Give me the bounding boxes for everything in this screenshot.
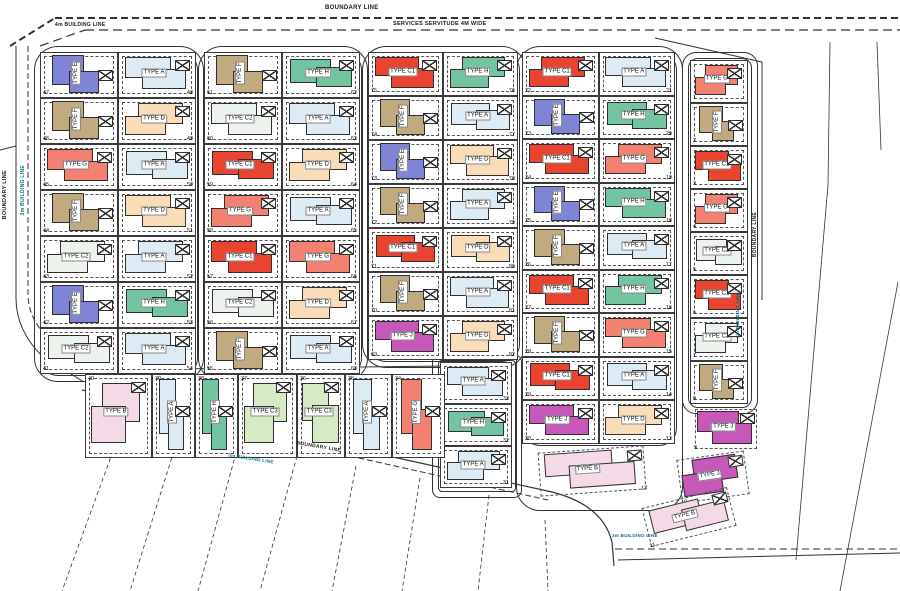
plot-27: TYPE C127 (522, 270, 599, 314)
plot-73: TYPE E73 (368, 140, 443, 184)
plot-55: TYPE F55 (204, 328, 282, 374)
house-type-label: TYPE F (552, 321, 562, 344)
house-type-label: TYPE H (305, 68, 331, 77)
plot-number: 43 (43, 274, 49, 280)
plot-54: TYPE A54 (118, 328, 196, 374)
crossed-box-icon (98, 208, 113, 219)
plot-number: 70 (371, 308, 377, 314)
plot-number: 14 (666, 392, 672, 398)
plot-number: 21 (666, 88, 672, 94)
house-type-label: TYPE F (398, 104, 408, 127)
plot-24: TYPE C124 (522, 139, 599, 183)
services-servitude-label: SERVICES SERVITUDE 4M WIDE (393, 21, 486, 27)
plot-25: TYPE E25 (522, 183, 599, 227)
house-type-label: TYPE A (141, 160, 166, 169)
crossed-box-icon (578, 278, 593, 289)
house-type-label: TYPE E (71, 61, 81, 84)
plot-number: 67 (351, 320, 357, 326)
plot-49: TYPE D49 (118, 98, 196, 144)
plot-34: TYPE G34 (392, 374, 445, 458)
plot-number: 1 (693, 95, 696, 101)
plot-68: TYPE A68 (282, 328, 360, 374)
crossed-box-icon (422, 236, 437, 247)
house-type-label: TYPE C2 (225, 298, 254, 307)
house-type-label: TYPE D (141, 206, 167, 215)
crossed-box-icon (578, 408, 593, 419)
plot-71: TYPE C171 (368, 228, 443, 272)
building-line-3m-right-label: 3m BUILDING LINE (735, 292, 741, 338)
crossed-box-icon (324, 382, 339, 393)
crossed-box-icon (97, 336, 112, 347)
crossed-box-icon (261, 244, 276, 255)
house-type-label: TYPE A (465, 199, 490, 208)
plot-13: TYPE D13 (599, 400, 676, 444)
plot-39: TYPE A39 (152, 374, 195, 458)
crossed-box-icon (491, 370, 506, 381)
plot-80: TYPE D80 (443, 228, 518, 272)
plot-81: TYPE A81 (443, 272, 518, 316)
plot-44: TYPE F44 (40, 190, 118, 236)
crossed-box-icon (372, 406, 387, 417)
plot-20: TYPE H20 (599, 96, 676, 140)
plot-number: 27 (525, 305, 531, 311)
plot-18: TYPE H18 (599, 183, 676, 227)
plot-3: TYPE C13 (690, 146, 748, 189)
house-type-label: TYPE H (621, 198, 647, 207)
crossed-box-icon (727, 154, 742, 165)
house-type-label: TYPE A (305, 206, 330, 215)
plot-number: 50 (187, 182, 193, 188)
plot-number: 80 (509, 264, 515, 270)
crossed-box-icon (175, 198, 190, 209)
crossed-box-icon (578, 365, 593, 376)
plot-8: TYPE F8 (690, 361, 748, 404)
plot-16: TYPE H16 (599, 270, 676, 314)
crossed-box-icon (339, 106, 354, 117)
plot-number: 54 (187, 366, 193, 372)
plot-number: 33 (503, 396, 509, 402)
crossed-box-icon (97, 152, 112, 163)
house-type-label: TYPE F (712, 369, 722, 392)
crossed-box-icon (497, 192, 512, 203)
crossed-box-icon (497, 280, 512, 291)
crossed-box-icon (727, 68, 742, 79)
crossed-box-icon (98, 116, 113, 127)
plot-14: TYPE A14 (599, 357, 676, 401)
plot-number: 12 (641, 485, 648, 491)
crossed-box-icon (654, 234, 669, 245)
crossed-box-icon (654, 278, 669, 289)
plot-69: TYPE J69 (368, 316, 443, 360)
plot-number: 82 (509, 352, 515, 358)
plot-number: 76 (509, 88, 515, 94)
plot-number: 64 (351, 182, 357, 188)
plot-number: 66 (351, 274, 357, 280)
plot-number: 34 (395, 376, 401, 382)
plot-number: 71 (371, 264, 377, 270)
plot-number: 47 (43, 90, 49, 96)
plot-52: TYPE A52 (118, 236, 196, 282)
building-line-3m-left-label: 3m BUILDING LINE (20, 165, 26, 215)
crossed-box-icon (579, 199, 594, 210)
plot-number: 77 (509, 132, 515, 138)
crossed-box-icon (175, 290, 190, 301)
plot-9: TYPE J9 (692, 406, 760, 452)
crossed-box-icon (339, 60, 354, 71)
house-type-label: TYPE D (465, 155, 491, 164)
crossed-box-icon (423, 201, 438, 212)
plot-74: TYPE F74 (368, 96, 443, 140)
house-type-label: TYPE G (621, 328, 647, 337)
crossed-box-icon (131, 382, 146, 393)
plot-number: 55 (207, 366, 213, 372)
plot-number: 73 (371, 176, 377, 182)
house-type-label: TYPE A (305, 344, 330, 353)
plot-46: TYPE F46 (40, 98, 118, 144)
crossed-box-icon (276, 382, 291, 393)
boundary-line-top-label: BOUNDARY LINE (325, 5, 379, 11)
house-type-label: TYPE C1 (543, 285, 572, 294)
house-type-label: TYPE D (621, 415, 647, 424)
crossed-box-icon (740, 413, 755, 424)
plot-number: 3 (693, 181, 696, 187)
plot-63: TYPE A63 (282, 98, 360, 144)
plot-42: TYPE E42 (40, 282, 118, 328)
plot-number: 53 (187, 320, 193, 326)
plot-number: 31 (503, 480, 509, 486)
house-type-label: TYPE A (621, 67, 646, 76)
house-type-label: TYPE C3 (251, 407, 280, 416)
crossed-box-icon (578, 60, 593, 71)
plot-30: TYPE J30 (522, 400, 599, 444)
plot-number: 28 (525, 349, 531, 355)
crossed-box-icon (654, 60, 669, 71)
plot-59: TYPE C159 (204, 144, 282, 190)
plot-50: TYPE A50 (118, 144, 196, 190)
plot-51: TYPE D51 (118, 190, 196, 236)
plot-38: TYPE H38 (195, 374, 238, 458)
plot-43: TYPE C243 (40, 236, 118, 282)
house-type-label: TYPE F (398, 280, 408, 303)
plot-number: 26 (525, 262, 531, 268)
house-type-label: TYPE G (704, 204, 730, 213)
plot-number: 29 (525, 392, 531, 398)
crossed-box-icon (422, 324, 437, 335)
plot-number: 15 (666, 349, 672, 355)
house-type-label: TYPE J (711, 422, 735, 431)
house-type-label: TYPE F (552, 234, 562, 257)
crossed-box-icon (578, 147, 593, 158)
plot-4: TYPE G4 (690, 189, 748, 232)
crossed-box-icon (339, 290, 354, 301)
plot-number: 63 (351, 136, 357, 142)
plot-5: TYPE C25 (690, 232, 748, 275)
crossed-box-icon (727, 197, 742, 208)
plot-number: 69 (371, 352, 377, 358)
plot-number: 20 (666, 131, 672, 137)
plot-number: 52 (187, 274, 193, 280)
plot-number: 22 (525, 88, 531, 94)
plot-number: 39 (155, 376, 161, 382)
house-type-label: TYPE F (398, 192, 408, 215)
crossed-box-icon (654, 191, 669, 202)
plot-23: TYPE E23 (522, 96, 599, 140)
house-type-label: TYPE C2 (61, 344, 90, 353)
plot-19: TYPE G19 (599, 139, 676, 183)
crossed-box-icon (579, 330, 594, 341)
house-type-label: TYPE J (545, 415, 569, 424)
plot-64: TYPE D64 (282, 144, 360, 190)
house-type-label: TYPE H (621, 285, 647, 294)
crossed-box-icon (491, 412, 506, 423)
plot-number: 9 (694, 445, 697, 451)
plot-number: 74 (371, 132, 377, 138)
plot-number: 8 (693, 396, 696, 402)
house-type-label: TYPE D (465, 331, 491, 340)
plot-number: 41 (43, 366, 49, 372)
plots-layer: TYPE E47TYPE F46TYPE G45TYPE F44TYPE C24… (0, 0, 900, 591)
house-type-label: TYPE A (465, 287, 490, 296)
plot-number: 5 (693, 267, 696, 273)
crossed-box-icon (339, 198, 354, 209)
plot-number: 79 (509, 220, 515, 226)
crossed-box-icon (497, 60, 512, 71)
plot-number: 35 (348, 376, 354, 382)
house-type-label: TYPE F (71, 107, 81, 130)
plot-60: TYPE C260 (204, 98, 282, 144)
house-type-label: TYPE H (621, 111, 647, 120)
crossed-box-icon (497, 104, 512, 115)
house-type-label: TYPE A (141, 68, 166, 77)
plot-number: 75 (371, 88, 377, 94)
crossed-box-icon (497, 236, 512, 247)
plot-31: TYPE A31 (440, 446, 512, 488)
plot-11: TYPE B11 (638, 483, 740, 550)
plot-number: 45 (43, 182, 49, 188)
house-type-label: TYPE G (411, 400, 421, 424)
plot-number: 7 (693, 353, 696, 359)
house-type-label: TYPE D (141, 114, 167, 123)
crossed-box-icon (728, 378, 743, 389)
building-line-3m-bottom-right-label: 3m BUILDING LINE (612, 533, 658, 539)
crossed-box-icon (627, 449, 643, 461)
plot-number: 6 (693, 310, 696, 316)
plot-number: 13 (666, 436, 672, 442)
house-type-label: TYPE C1 (225, 160, 254, 169)
crossed-box-icon (497, 324, 512, 335)
plot-75: TYPE C175 (368, 52, 443, 96)
plot-57: TYPE C157 (204, 236, 282, 282)
house-type-label: TYPE C1 (543, 154, 572, 163)
crossed-box-icon (175, 244, 190, 255)
plot-number: 23 (525, 131, 531, 137)
house-type-label: TYPE C1 (388, 67, 417, 76)
plot-number: 81 (509, 308, 515, 314)
plot-number: 49 (187, 136, 193, 142)
plot-number: 65 (351, 228, 357, 234)
plot-21: TYPE A21 (599, 52, 676, 96)
plot-number: 2 (693, 138, 696, 144)
house-type-label: TYPE G (621, 154, 647, 163)
house-type-label: TYPE B (103, 407, 128, 416)
crossed-box-icon (175, 152, 190, 163)
plot-number: 4 (693, 224, 696, 230)
plot-53: TYPE H53 (118, 282, 196, 328)
plot-number: 30 (525, 436, 531, 442)
house-type-label: TYPE A (621, 241, 646, 250)
house-type-label: TYPE C1 (543, 372, 572, 381)
plot-number: 18 (666, 218, 672, 224)
crossed-box-icon (261, 152, 276, 163)
plot-number: 48 (187, 90, 193, 96)
plot-56: TYPE C256 (204, 282, 282, 328)
crossed-box-icon (175, 106, 190, 117)
house-type-label: TYPE A (305, 114, 330, 123)
house-type-label: TYPE G (63, 160, 89, 169)
house-type-label: TYPE E (552, 191, 562, 214)
plot-48: TYPE A48 (118, 52, 196, 98)
plot-12: TYPE B12 (534, 442, 649, 500)
crossed-box-icon (339, 152, 354, 163)
plot-2: TYPE F2 (690, 103, 748, 146)
plot-15: TYPE G15 (599, 313, 676, 357)
plot-22: TYPE C122 (522, 52, 599, 96)
crossed-box-icon (423, 157, 438, 168)
plot-number: 56 (207, 320, 213, 326)
plot-number: 38 (198, 376, 204, 382)
house-type-label: TYPE D (305, 298, 331, 307)
crossed-box-icon (97, 244, 112, 255)
house-type-label: TYPE A (141, 344, 166, 353)
house-type-label: TYPE D (305, 160, 331, 169)
crossed-box-icon (262, 70, 277, 81)
plot-32: TYPE H32 (440, 404, 512, 446)
house-type-label: TYPE A (141, 252, 166, 261)
crossed-box-icon (261, 198, 276, 209)
crossed-box-icon (339, 244, 354, 255)
crossed-box-icon (261, 290, 276, 301)
plot-number: 61 (207, 90, 213, 96)
plot-82: TYPE D82 (443, 316, 518, 360)
house-type-label: TYPE E (398, 148, 408, 171)
plot-number: 57 (207, 274, 213, 280)
crossed-box-icon (218, 406, 233, 417)
plot-number: 78 (509, 176, 515, 182)
house-type-label: TYPE C3 (305, 407, 334, 416)
plot-17: TYPE A17 (599, 226, 676, 270)
plot-number: 32 (503, 438, 509, 444)
plot-number: 62 (351, 90, 357, 96)
house-type-label: TYPE F (235, 337, 245, 360)
crossed-box-icon (261, 106, 276, 117)
house-type-label: TYPE G (227, 206, 253, 215)
building-line-4m-label: 4m BUILDING LINE (55, 22, 105, 28)
plot-28: TYPE F28 (522, 313, 599, 357)
crossed-box-icon (497, 148, 512, 159)
crossed-box-icon (339, 336, 354, 347)
plot-77: TYPE A77 (443, 96, 518, 140)
crossed-box-icon (175, 336, 190, 347)
plot-66: TYPE G66 (282, 236, 360, 282)
plot-29: TYPE C129 (522, 357, 599, 401)
plot-number: 42 (43, 320, 49, 326)
crossed-box-icon (579, 112, 594, 123)
house-type-label: TYPE H (141, 298, 167, 307)
crossed-box-icon (654, 104, 669, 115)
crossed-box-icon (654, 365, 669, 376)
house-type-label: TYPE C1 (225, 252, 254, 261)
house-type-label: TYPE G (305, 252, 331, 261)
plot-41: TYPE C241 (40, 328, 118, 374)
crossed-box-icon (654, 147, 669, 158)
crossed-box-icon (175, 406, 190, 417)
crossed-box-icon (727, 455, 743, 468)
plot-35: TYPE A35 (345, 374, 392, 458)
plot-number: 46 (43, 136, 49, 142)
house-type-label: TYPE H (460, 419, 486, 428)
plot-number: 59 (207, 182, 213, 188)
house-type-label: TYPE A (461, 377, 486, 386)
house-type-label: TYPE B (574, 463, 600, 474)
plot-number: 40 (88, 376, 94, 382)
plot-76: TYPE H76 (443, 52, 518, 96)
plot-number: 37 (241, 376, 247, 382)
crossed-box-icon (425, 406, 440, 417)
plot-number: 16 (666, 305, 672, 311)
crossed-box-icon (422, 60, 437, 71)
house-type-label: TYPE C1 (388, 243, 417, 252)
plot-58: TYPE G58 (204, 190, 282, 236)
plot-70: TYPE F70 (368, 272, 443, 316)
plot-78: TYPE D78 (443, 140, 518, 184)
plot-79: TYPE A79 (443, 184, 518, 228)
plot-number: 36 (300, 376, 306, 382)
house-type-label: TYPE F (712, 111, 722, 134)
house-type-label: TYPE A (621, 372, 646, 381)
plot-number: 19 (666, 175, 672, 181)
plot-33: TYPE A33 (440, 362, 512, 404)
plot-number: 68 (351, 366, 357, 372)
house-type-label: TYPE H (465, 67, 491, 76)
plot-1: TYPE G1 (690, 60, 748, 103)
crossed-box-icon (262, 346, 277, 357)
plot-number: 72 (371, 220, 377, 226)
crossed-box-icon (654, 321, 669, 332)
crossed-box-icon (423, 289, 438, 300)
plot-number: 51 (187, 228, 193, 234)
house-type-label: TYPE C2 (61, 252, 90, 261)
crossed-box-icon (727, 240, 742, 251)
house-type-label: TYPE A (461, 461, 486, 470)
plot-67: TYPE D67 (282, 282, 360, 328)
crossed-box-icon (98, 70, 113, 81)
plot-number: 44 (43, 228, 49, 234)
boundary-line-right-label: BOUNDARY LINE (752, 212, 758, 257)
crossed-box-icon (98, 300, 113, 311)
plot-number: 58 (207, 228, 213, 234)
plot-45: TYPE G45 (40, 144, 118, 190)
crossed-box-icon (728, 120, 743, 131)
house-type-label: TYPE F (71, 199, 81, 222)
site-plan-drawing: TYPE E47TYPE F46TYPE G45TYPE F44TYPE C24… (0, 0, 900, 591)
plot-number: 25 (525, 218, 531, 224)
plot-26: TYPE F26 (522, 226, 599, 270)
plot-61: TYPE F61 (204, 52, 282, 98)
house-type-label: TYPE A (465, 111, 490, 120)
house-type-label: TYPE C1 (543, 67, 572, 76)
house-type-label: TYPE A (362, 400, 372, 423)
plot-number: 11 (649, 542, 656, 549)
